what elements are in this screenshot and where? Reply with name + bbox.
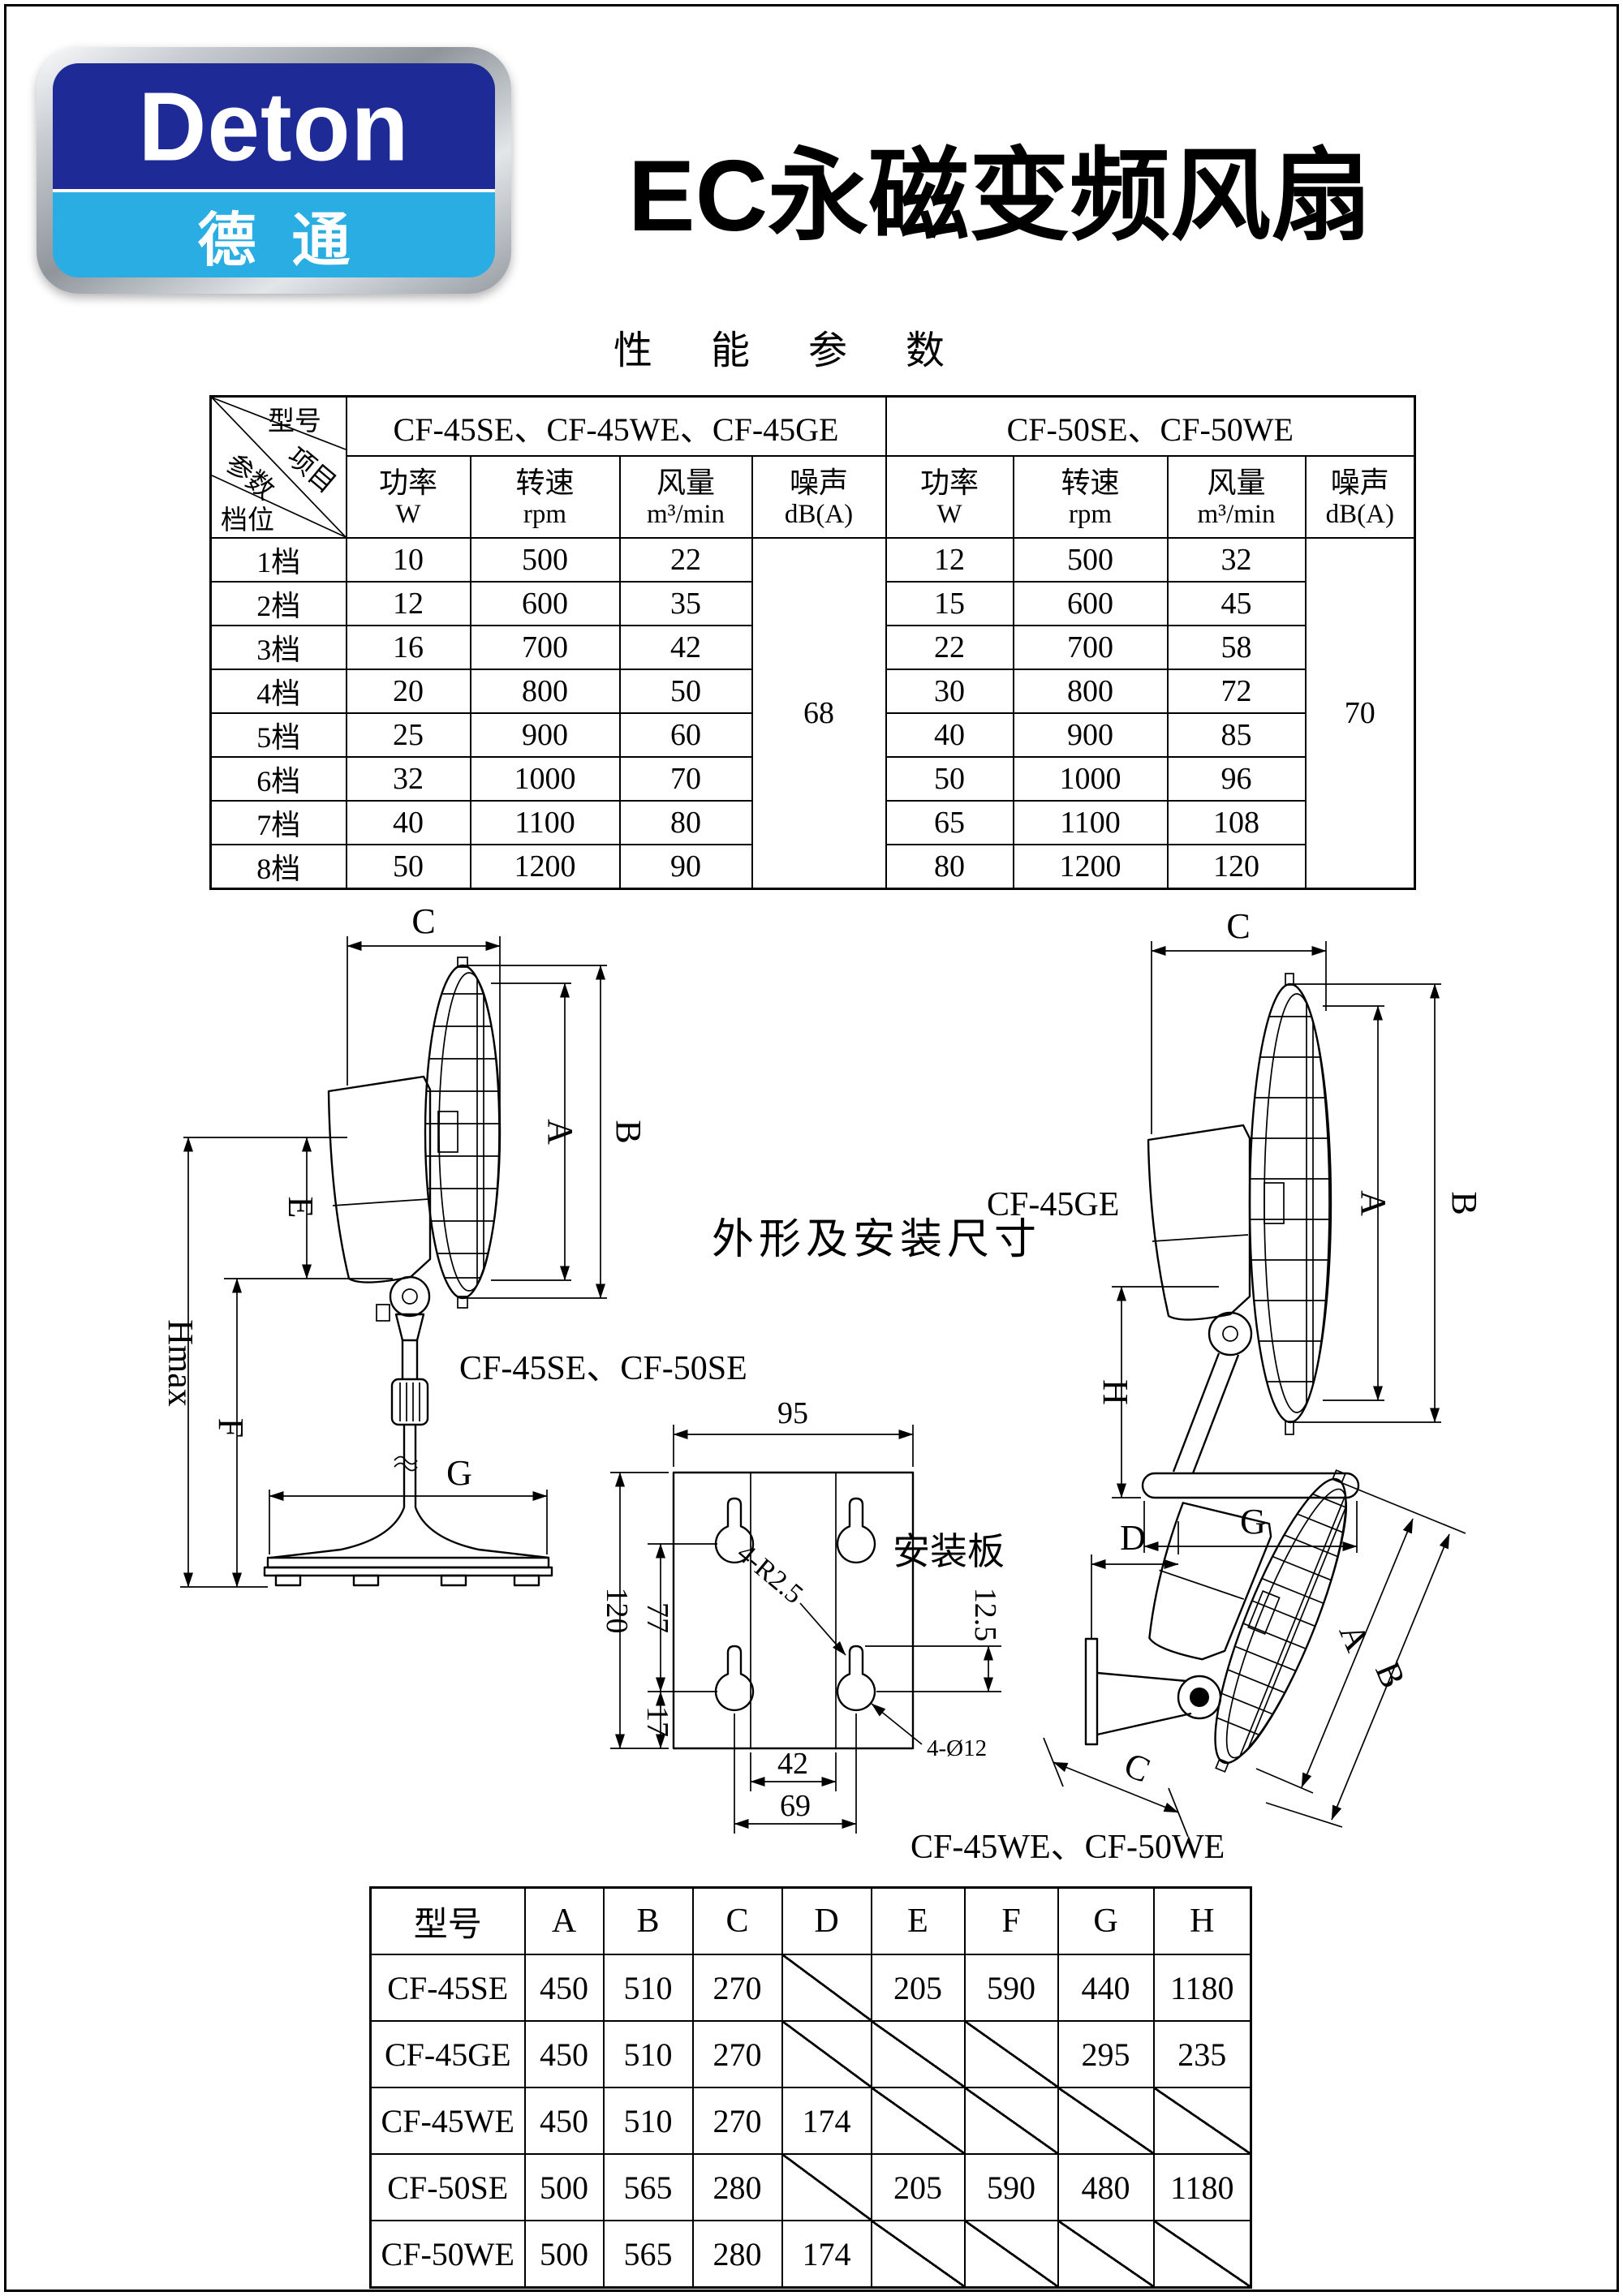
dim-label-hmax-pedestal: Hmax <box>161 1319 200 1407</box>
empty-cell <box>872 2087 965 2154</box>
table-header-row: 型号 A B C D E F G H <box>371 1888 1251 1955</box>
plate-dim-hole-d: 4-Ø12 <box>927 1735 987 1761</box>
desk-fan-drawing: C B A H G CF-45GE <box>987 906 1484 1553</box>
dim-label-g-pedestal: G <box>446 1453 472 1493</box>
plate-dim-hole-v: 77 <box>640 1602 674 1633</box>
col-header-power-1: 功率W <box>347 456 471 538</box>
empty-cell <box>782 1954 872 2021</box>
dim-label-e-pedestal: E <box>281 1197 321 1219</box>
empty-cell <box>965 2221 1058 2288</box>
performance-table: 型号 项目 参数 档位 CF-45SE、CF-45WE、CF-45GE CF-5… <box>209 395 1416 890</box>
dim-label-h-desk: H <box>1096 1379 1135 1405</box>
corner-header-cell: 型号 项目 参数 档位 <box>211 397 347 539</box>
performance-heading: 性 能 参 数 <box>373 318 1185 375</box>
col-header-noise-2: 噪声dB(A) <box>1306 456 1415 538</box>
corner-label-param: 参数 <box>220 449 280 506</box>
deton-logo: Deton 德通 <box>37 47 511 294</box>
col-header-airflow-1: 风量m³/min <box>620 456 752 538</box>
group-header-45: CF-45SE、CF-45WE、CF-45GE <box>347 397 886 457</box>
noise-merged-45: 68 <box>752 538 886 889</box>
col-header-airflow-2: 风量m³/min <box>1168 456 1306 538</box>
dim-label-b-pedestal: B <box>609 1120 648 1143</box>
plate-dim-slot-offset: 12.5 <box>968 1588 1002 1642</box>
dim-label-b-desk: B <box>1444 1191 1484 1215</box>
plate-dim-hole-h: 69 <box>780 1789 811 1823</box>
dimensions-table: 型号 A B C D E F G H CF-45SE 450 510 270 2… <box>369 1886 1252 2289</box>
table-row: 1档 10 500 22 68 12 500 32 70 <box>211 538 1415 582</box>
dim-label-a-desk: A <box>1354 1190 1393 1216</box>
table-row: CF-45SE 450 510 270 205 590 440 1180 <box>371 1954 1251 2021</box>
pedestal-model-label: CF-45SE、CF-50SE <box>459 1350 747 1387</box>
plate-dim-radius: 4-R2.5 <box>731 1538 808 1610</box>
spec-sheet-page: Deton 德通 EC永磁变频风扇 性 能 参 数 型号 项目 参 <box>0 0 1623 2296</box>
empty-cell <box>782 2154 872 2221</box>
dim-label-b-wall: B <box>1367 1656 1414 1693</box>
noise-merged-50: 70 <box>1306 538 1415 889</box>
dim-label-c-wall: C <box>1119 1744 1156 1790</box>
plate-dim-bottom: 17 <box>640 1706 674 1737</box>
table-row: CF-50SE 500 565 280 205 590 480 1180 <box>371 2154 1251 2221</box>
plate-dim-inner: 42 <box>777 1747 808 1781</box>
dim-label-c-desk: C <box>1226 906 1250 946</box>
pedestal-fan-drawing: C B A E Hmax F G CF-45SE、CF-50SE <box>161 901 747 1587</box>
logo-cn-panel: 德通 <box>53 189 495 277</box>
dim-label-d-wall: D <box>1120 1518 1146 1558</box>
empty-cell <box>965 2087 1058 2154</box>
group-header-50: CF-50SE、CF-50WE <box>886 397 1415 457</box>
wall-fan-drawing: D C A B CF-45WE、CF-50WE <box>911 1421 1466 1866</box>
logo-brand-text: Deton <box>139 70 410 183</box>
col-header-power-2: 功率W <box>886 456 1014 538</box>
logo-brand-panel: Deton <box>53 63 495 189</box>
empty-cell <box>1154 2221 1251 2288</box>
empty-cell <box>1058 2087 1154 2154</box>
table-row: CF-50WE 500 565 280 174 <box>371 2221 1251 2288</box>
table-row: CF-45WE 450 510 270 174 <box>371 2087 1251 2154</box>
page-title: EC永磁变频风扇 <box>594 114 1406 260</box>
corner-label-model: 型号 <box>268 407 321 436</box>
col-header-speed-1: 转速rpm <box>471 456 620 538</box>
dim-label-f-pedestal: F <box>211 1418 251 1438</box>
plate-label: 安装板 <box>893 1531 1005 1572</box>
mounting-plate-drawing: 95 120 77 17 42 69 12.5 4-R2.5 4- <box>600 1396 1005 1834</box>
corner-label-gear: 档位 <box>221 505 274 535</box>
dim-label-a-wall: A <box>1332 1618 1379 1658</box>
dim-label-c-pedestal: C <box>411 901 435 941</box>
plate-dim-width: 95 <box>777 1396 808 1430</box>
col-header-speed-2: 转速rpm <box>1014 456 1168 538</box>
drawings-heading: 外形及安装尺寸 <box>712 1217 1041 1263</box>
corner-diagonal: 型号 项目 参数 档位 <box>212 398 346 537</box>
col-header-noise-1: 噪声dB(A) <box>752 456 886 538</box>
desk-model-label: CF-45GE <box>987 1186 1119 1223</box>
logo-cn-text: 德通 <box>161 192 385 277</box>
empty-cell <box>1058 2221 1154 2288</box>
empty-cell <box>872 2021 965 2087</box>
dimension-drawings: 外形及安装尺寸 <box>0 876 1623 1890</box>
empty-cell <box>872 2221 965 2288</box>
empty-cell <box>1154 2087 1251 2154</box>
empty-cell <box>782 2021 872 2087</box>
empty-cell <box>965 2021 1058 2087</box>
plate-dim-height: 120 <box>600 1588 634 1634</box>
corner-label-item: 项目 <box>282 442 342 499</box>
dim-label-a-pedestal: A <box>540 1119 580 1145</box>
table-row: CF-45GE 450 510 270 295 235 <box>371 2021 1251 2087</box>
wall-model-label: CF-45WE、CF-50WE <box>911 1829 1225 1866</box>
